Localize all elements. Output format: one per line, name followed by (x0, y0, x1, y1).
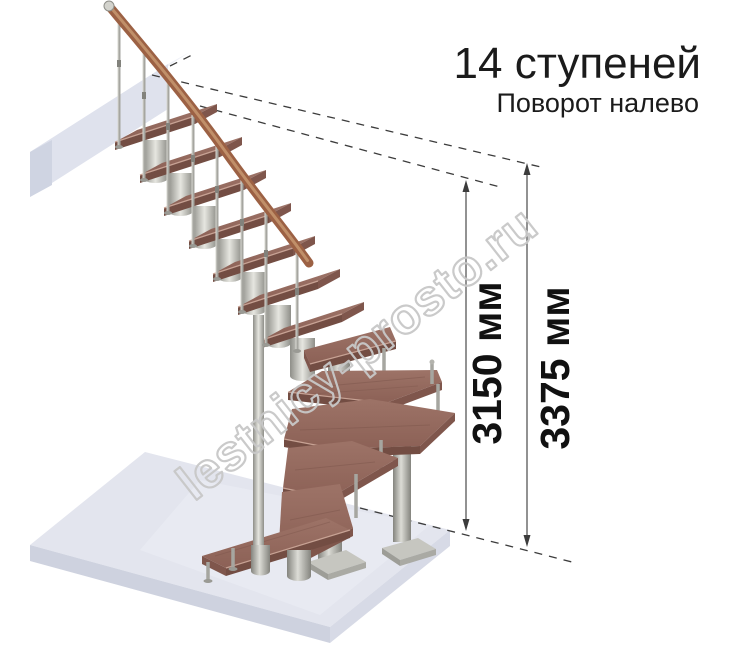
pole-foot-base (251, 567, 270, 576)
dimension-arrow-up (524, 163, 531, 175)
straight-flight (115, 104, 364, 381)
dimension-arrow-down (524, 535, 531, 547)
handrail-end-cap (104, 1, 114, 11)
post-ball (430, 360, 435, 365)
leg-foot (204, 579, 213, 583)
landing-end-face (30, 140, 52, 197)
dimension-arrow-down (463, 519, 470, 531)
dimension-arrow-up (463, 180, 470, 192)
page-title: 14 ступеней (454, 39, 701, 88)
leg-foot (229, 567, 238, 571)
right-column (393, 440, 411, 542)
baluster (293, 252, 301, 353)
dashed-line-corner (170, 53, 196, 66)
dimension-label-3375: 3375 мм (532, 286, 578, 449)
foot-cylinder (287, 550, 311, 581)
screenshot-canvas: 3150 мм 3375 мм (0, 0, 744, 655)
staircase-diagram: 3150 мм 3375 мм (0, 0, 744, 655)
page-subtitle: Поворот налево (496, 88, 699, 118)
header-text: 14 ступеней Поворот налево (454, 39, 701, 118)
dimension-label-3150: 3150 мм (464, 281, 510, 444)
